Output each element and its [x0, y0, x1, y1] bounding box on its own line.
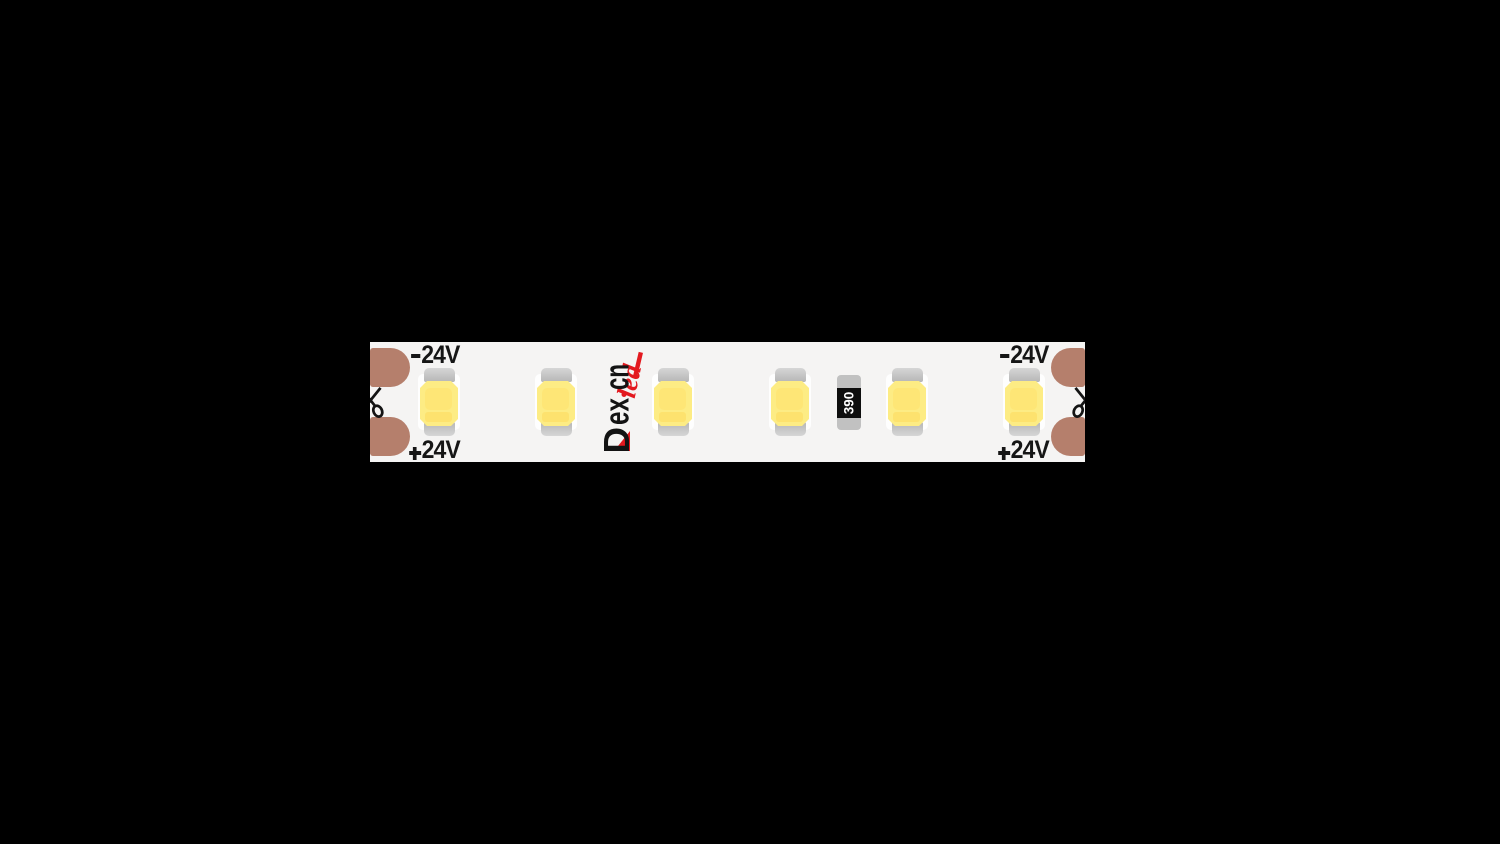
svg-text:cn: cn	[599, 364, 637, 390]
svg-text:390: 390	[842, 392, 857, 415]
svg-text:D: D	[596, 427, 637, 454]
svg-text:ex: ex	[599, 398, 637, 425]
